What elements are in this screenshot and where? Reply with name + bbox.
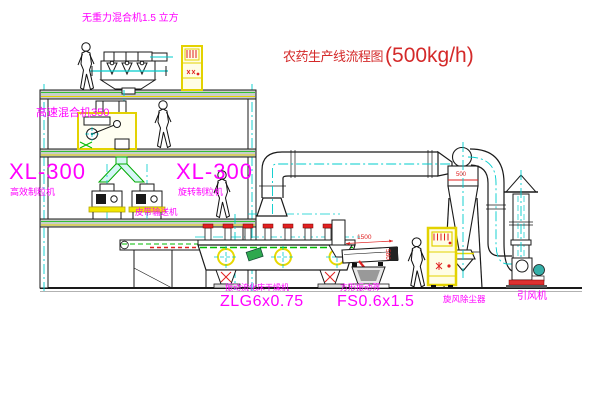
gravity-mixer	[90, 52, 173, 94]
y-chute	[99, 157, 144, 182]
label-dryer-model: ZLG6x0.75	[220, 294, 304, 310]
dim-screen-height: 580	[384, 249, 391, 260]
label-granulator-left: 高效制粒机	[10, 188, 55, 197]
label-screen-model: FS0.6x1.5	[337, 294, 414, 310]
label-belt-conveyor: 皮带输送机	[135, 208, 178, 217]
diagram-title: 农药生产线流程图 (500kg/h)	[283, 44, 474, 68]
ground-line	[40, 288, 582, 292]
control-cabinet-2	[428, 228, 456, 288]
control-cabinet-1	[182, 46, 202, 90]
label-dryer-name: 振动流化床干燥机	[225, 284, 289, 292]
label-high-speed-mixer: 高速混合机350	[36, 108, 109, 119]
dim-cyclone: 500	[456, 172, 466, 178]
diagram-stage: 农药生产线流程图 (500kg/h) 无重力混合机1.5 立方 高速混合机350…	[0, 0, 600, 403]
label-gravity-mixer: 无重力混合机1.5 立方	[82, 14, 179, 24]
title-text: 农药生产线流程图	[283, 46, 383, 68]
label-xl300-right: XL-300	[176, 161, 253, 183]
label-fan: 引风机	[517, 292, 547, 302]
dim-screen-length: 1500	[357, 235, 371, 242]
exhaust-duct-main	[257, 150, 452, 216]
title-capacity: (500kg/h)	[385, 44, 474, 68]
worker-second-floor	[155, 101, 171, 148]
label-xl300-left: XL-300	[9, 161, 86, 183]
label-granulator-right: 旋转制粒机	[178, 188, 223, 197]
label-cyclone: 旋风除尘器	[443, 295, 486, 304]
worker-ground	[408, 238, 425, 287]
fluid-bed-dryer	[198, 224, 355, 288]
label-screen-name: 方形振动筛	[340, 284, 380, 292]
induced-draft-fan	[506, 258, 547, 288]
